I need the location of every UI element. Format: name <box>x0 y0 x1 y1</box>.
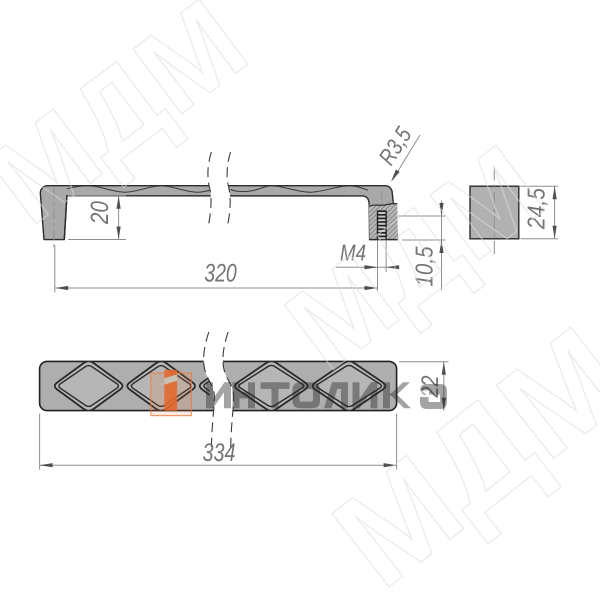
svg-text:320: 320 <box>204 260 237 288</box>
svg-text:334: 334 <box>203 439 236 467</box>
